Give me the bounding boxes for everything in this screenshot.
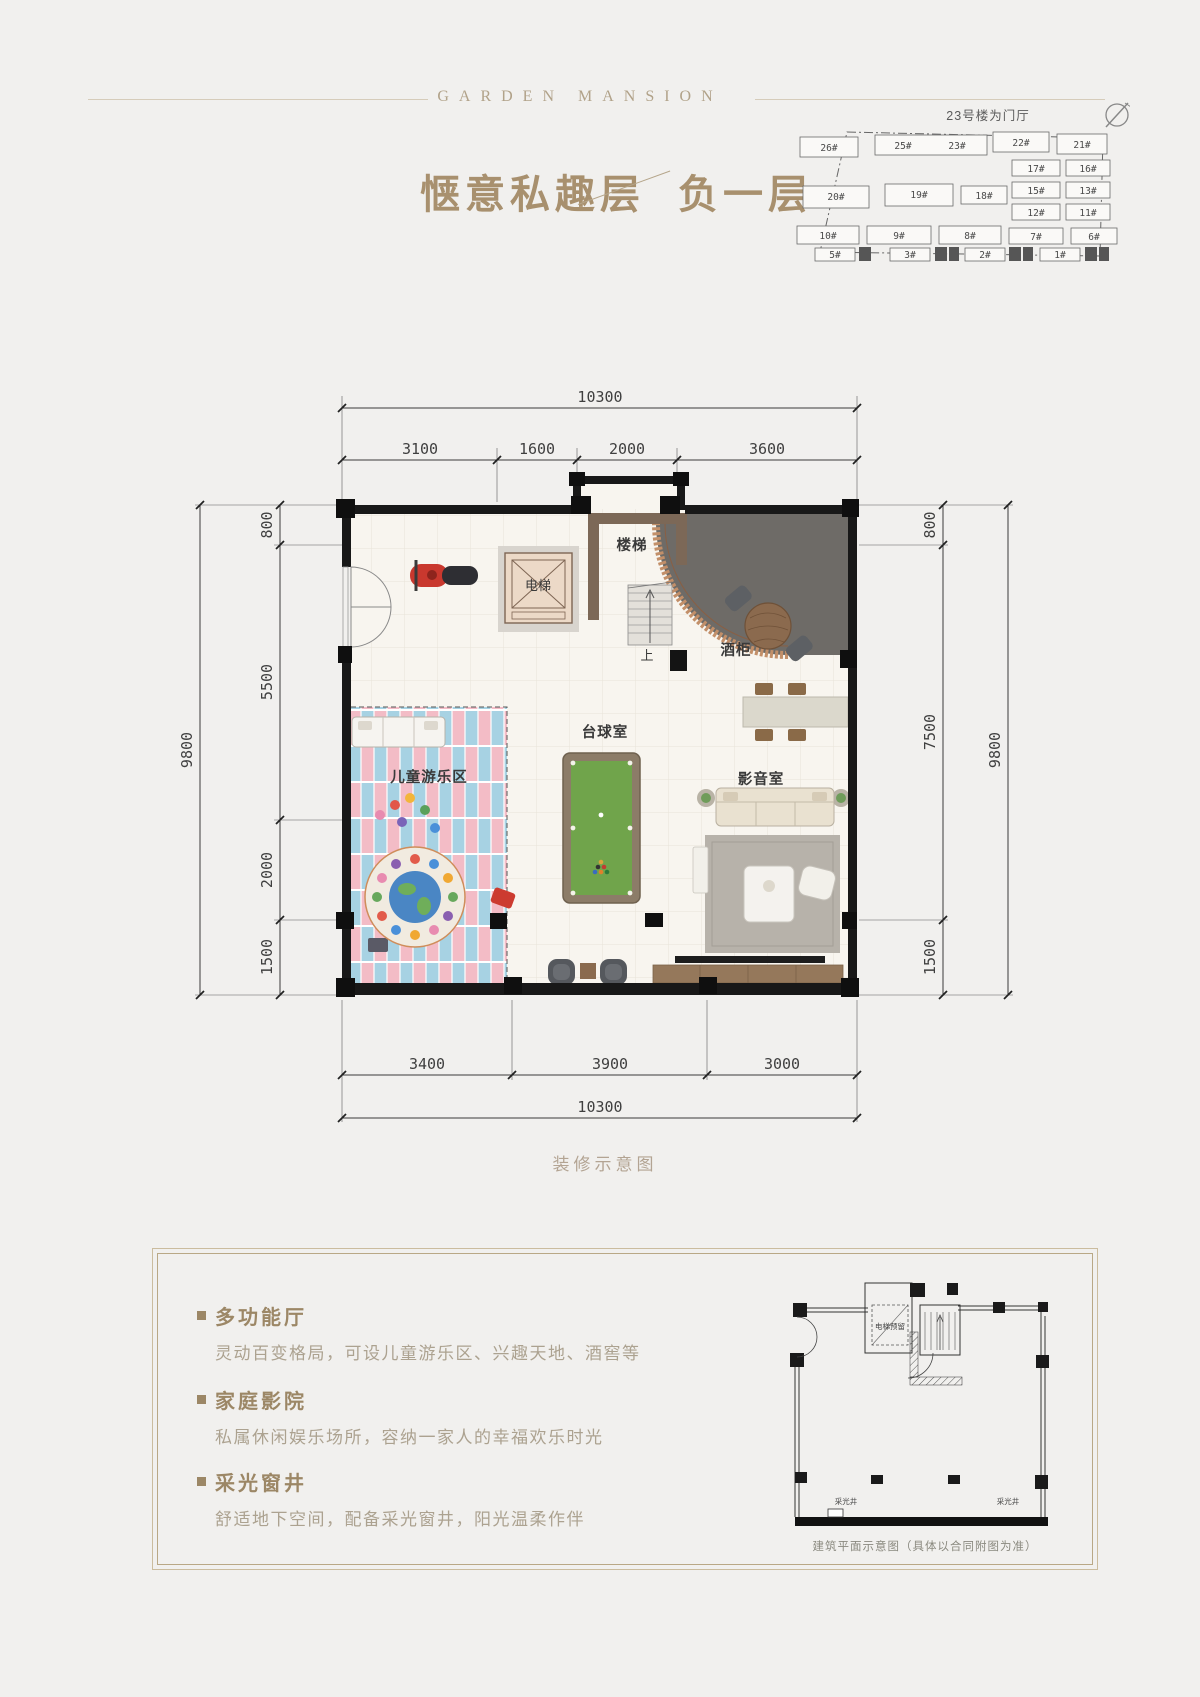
technical-plan: 电梯预留 采光井 采光井 (770, 1272, 1070, 1532)
brand-title: GARDEN MANSION (430, 88, 730, 106)
svg-text:10#: 10# (819, 231, 836, 242)
brochure-page: GARDEN MANSION 惬意私趣层 负一层 23号楼为门厅 (0, 0, 1200, 1697)
floor-plan-caption: 装修示意图 (480, 1150, 730, 1175)
feature-desc: 舒适地下空间，配备采光窗井，阳光温柔作伴 (215, 1505, 757, 1530)
svg-text:1#: 1# (1054, 250, 1066, 261)
compass-icon (1106, 103, 1130, 127)
svg-text:2#: 2# (979, 250, 991, 261)
svg-text:1500: 1500 (921, 939, 939, 975)
feature-item-multifunction: 多功能厅 灵动百变格局，可设儿童游乐区、兴趣天地、酒窖等 (197, 1301, 757, 1364)
technical-plan-caption: 建筑平面示意图（具体以合同附图为准） (780, 1538, 1070, 1554)
kids-zone-label: 儿童游乐区 (389, 768, 468, 786)
bullet-square-icon (197, 1311, 206, 1320)
header-rule-left (88, 99, 428, 100)
svg-text:22#: 22# (1012, 138, 1029, 149)
stairs-label: 楼梯 (617, 536, 648, 554)
stairs-up-label: 上 (640, 648, 653, 663)
svg-text:23#: 23# (948, 141, 965, 152)
feature-desc: 灵动百变格局，可设儿童游乐区、兴趣天地、酒窖等 (215, 1339, 757, 1364)
svg-text:800: 800 (258, 511, 276, 538)
svg-text:9800: 9800 (986, 732, 1004, 768)
svg-text:3400: 3400 (409, 1055, 445, 1073)
feature-desc: 私属休闲娱乐场所，容纳一家人的幸福欢乐时光 (215, 1423, 757, 1448)
svg-text:12#: 12# (1027, 208, 1044, 219)
svg-text:25#: 25# (894, 141, 911, 152)
feature-title: 采光窗井 (215, 1467, 307, 1496)
bullet-square-icon (197, 1395, 206, 1404)
svg-text:6#: 6# (1088, 232, 1100, 243)
svg-text:2000: 2000 (609, 440, 645, 458)
svg-text:18#: 18# (975, 191, 992, 202)
svg-text:15#: 15# (1027, 186, 1044, 197)
tech-bottom-wall (795, 1517, 1048, 1526)
svg-text:2000: 2000 (258, 852, 276, 888)
world-play-rug (365, 847, 465, 947)
floor-plan: 10300 3100 1600 2000 3600 3400 3900 3000… (140, 350, 1060, 1180)
svg-text:26#: 26# (820, 143, 837, 154)
svg-text:9#: 9# (893, 231, 905, 242)
svg-text:3#: 3# (904, 250, 916, 261)
svg-text:17#: 17# (1027, 164, 1044, 175)
billiards-room-label: 台球室 (582, 723, 629, 741)
svg-text:3900: 3900 (592, 1055, 628, 1073)
wine-cabinet-label: 酒柜 (721, 641, 752, 659)
svg-text:21#: 21# (1073, 140, 1090, 151)
svg-text:3600: 3600 (749, 440, 785, 458)
svg-text:7#: 7# (1030, 232, 1042, 243)
svg-text:11#: 11# (1079, 208, 1096, 219)
site-plan-note: 23号楼为门厅 (946, 108, 1029, 123)
svg-text:5500: 5500 (258, 664, 276, 700)
elevator-reserved-label: 电梯预留 (875, 1321, 905, 1331)
light-well-marker (828, 1509, 843, 1517)
tech-stair-and-elevator (797, 1305, 962, 1385)
svg-text:5#: 5# (829, 250, 841, 261)
media-room-label: 影音室 (738, 770, 785, 788)
svg-text:20#: 20# (827, 192, 844, 203)
svg-text:10300: 10300 (577, 388, 622, 406)
feature-item-light-well: 采光窗井 舒适地下空间，配备采光窗井，阳光温柔作伴 (197, 1467, 757, 1530)
pool-table (563, 753, 640, 903)
svg-text:16#: 16# (1079, 164, 1096, 175)
feature-title: 多功能厅 (215, 1301, 307, 1330)
tech-walls (795, 1283, 1045, 1517)
svg-text:800: 800 (921, 511, 939, 538)
elevator-label: 电梯 (525, 578, 551, 593)
site-plan-keymap: 23号楼为门厅 26# 25# (775, 90, 1130, 265)
light-well-right-label: 采光井 (997, 1496, 1020, 1506)
light-well-left-label: 采光井 (835, 1496, 858, 1506)
svg-text:10300: 10300 (577, 1098, 622, 1116)
feature-item-home-theater: 家庭影院 私属休闲娱乐场所，容纳一家人的幸福欢乐时光 (197, 1385, 757, 1448)
svg-text:1600: 1600 (519, 440, 555, 458)
svg-text:8#: 8# (964, 231, 976, 242)
svg-text:3100: 3100 (402, 440, 438, 458)
svg-text:13#: 13# (1079, 186, 1096, 197)
bullet-square-icon (197, 1477, 206, 1486)
feature-title: 家庭影院 (215, 1385, 307, 1414)
svg-text:1500: 1500 (258, 939, 276, 975)
svg-text:7500: 7500 (921, 714, 939, 750)
svg-text:9800: 9800 (178, 732, 196, 768)
svg-text:3000: 3000 (764, 1055, 800, 1073)
svg-text:19#: 19# (910, 190, 927, 201)
